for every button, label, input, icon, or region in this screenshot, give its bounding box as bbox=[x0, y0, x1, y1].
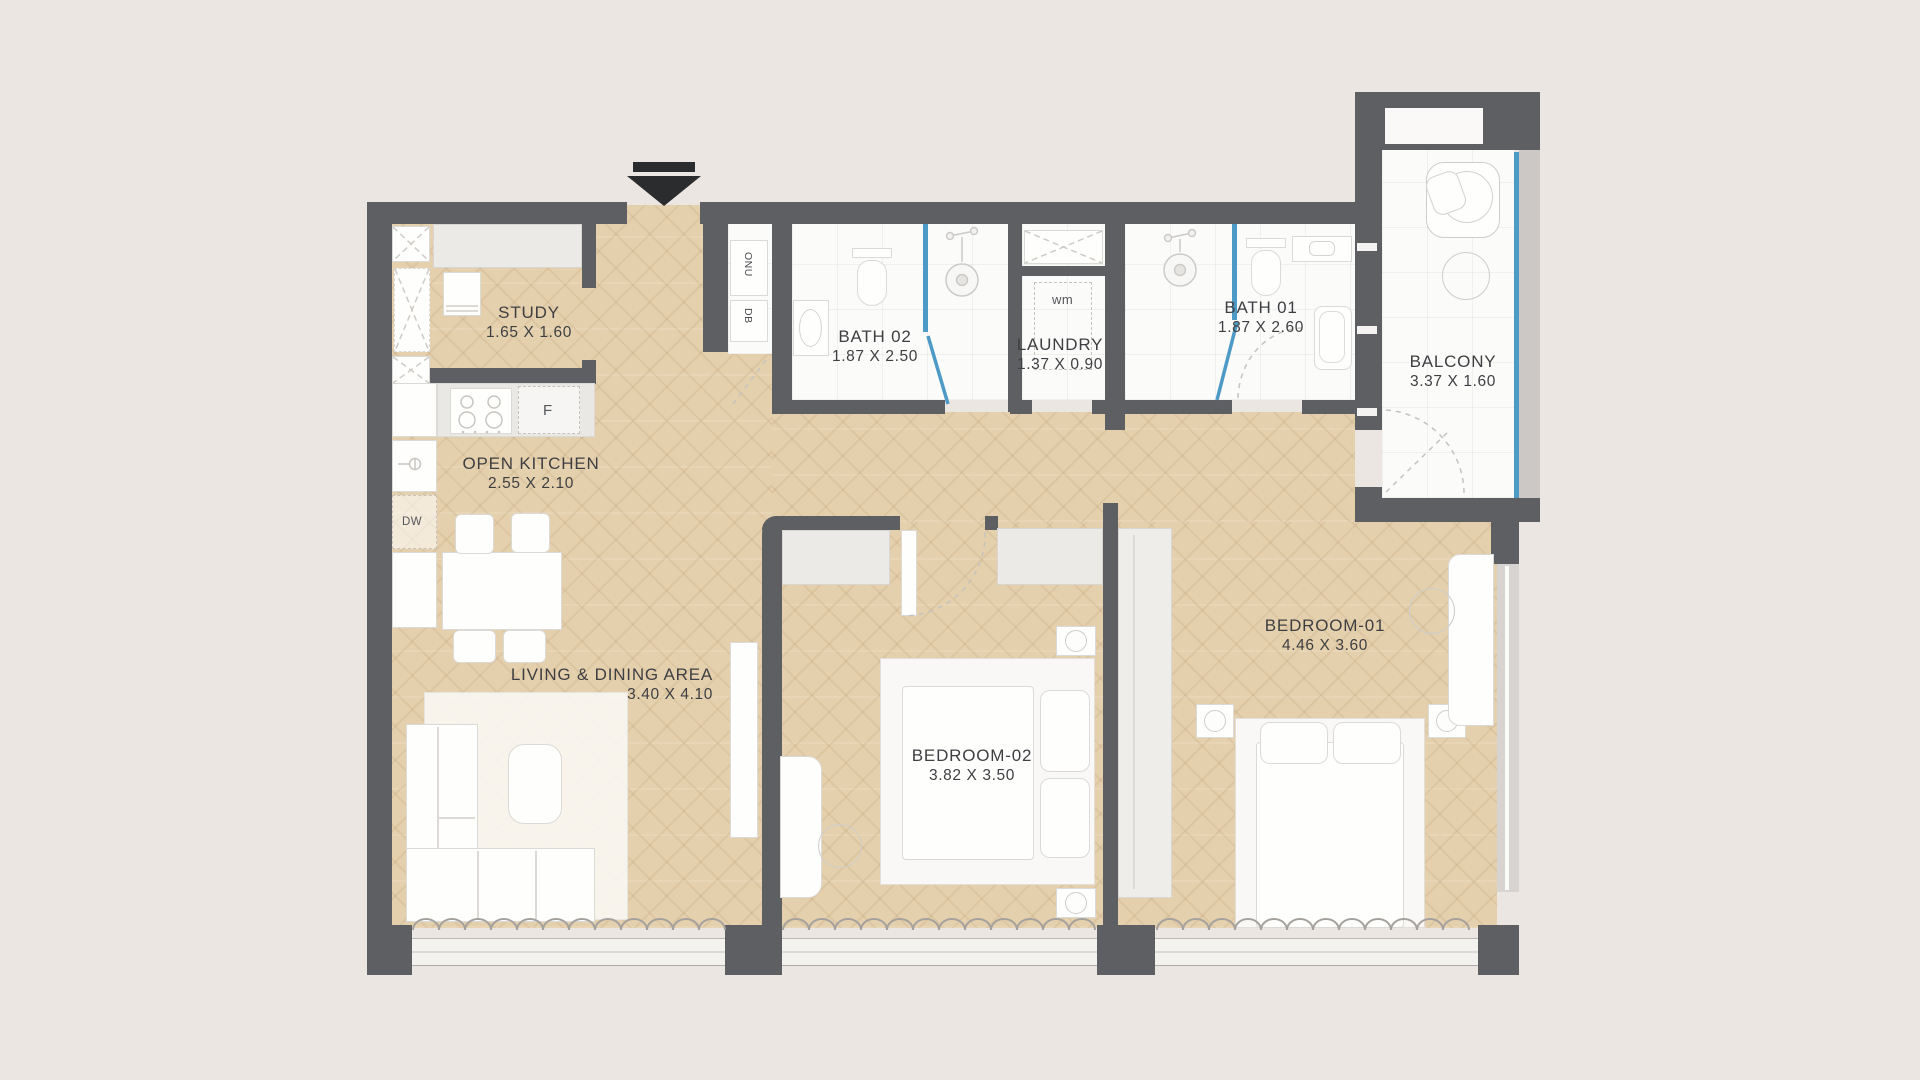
room-name: STUDY bbox=[486, 304, 572, 321]
room-dims: 4.46 X 3.60 bbox=[1265, 638, 1385, 654]
label-laundry: LAUNDRY 1.37 X 0.90 bbox=[1017, 336, 1104, 373]
kitchen-faucet bbox=[398, 458, 421, 470]
label-kitchen: OPEN KITCHEN 2.55 X 2.10 bbox=[462, 455, 599, 492]
room-dims: 3.82 X 3.50 bbox=[912, 768, 1032, 784]
room-dims: 1.37 X 0.90 bbox=[1017, 357, 1104, 373]
label-bath01: BATH 01 1.87 X 2.60 bbox=[1218, 299, 1304, 336]
room-name: LAUNDRY bbox=[1017, 336, 1104, 353]
label-study: STUDY 1.65 X 1.60 bbox=[486, 304, 572, 341]
room-dims: 3.37 X 1.60 bbox=[1410, 374, 1497, 390]
room-dims: 3.40 X 4.10 bbox=[463, 687, 713, 703]
room-name: BEDROOM-01 bbox=[1265, 617, 1385, 634]
plan-linework bbox=[0, 0, 1920, 1080]
room-name: BALCONY bbox=[1410, 353, 1497, 370]
room-name: LIVING & DINING AREA bbox=[463, 666, 713, 683]
label-balcony: BALCONY 3.37 X 1.60 bbox=[1410, 353, 1497, 390]
shower-head-bath01 bbox=[1164, 230, 1196, 287]
shower-head-bath02 bbox=[946, 228, 978, 297]
room-dims: 1.87 X 2.60 bbox=[1218, 320, 1304, 336]
label-living: LIVING & DINING AREA 3.40 X 4.10 bbox=[463, 666, 713, 703]
room-name: BATH 02 bbox=[832, 328, 918, 345]
room-dims: 1.87 X 2.50 bbox=[832, 349, 918, 365]
room-name: BEDROOM-02 bbox=[912, 747, 1032, 764]
room-dims: 2.55 X 2.10 bbox=[462, 476, 599, 492]
room-dims: 1.65 X 1.60 bbox=[486, 325, 572, 341]
label-bedroom02: BEDROOM-02 3.82 X 3.50 bbox=[912, 747, 1032, 784]
floor-plan: F DW ONU DB wm bbox=[0, 0, 1920, 1080]
label-bath02: BATH 02 1.87 X 2.50 bbox=[832, 328, 918, 365]
room-name: OPEN KITCHEN bbox=[462, 455, 599, 472]
label-bedroom01: BEDROOM-01 4.46 X 3.60 bbox=[1265, 617, 1385, 654]
curtains bbox=[413, 919, 1469, 930]
room-name: BATH 01 bbox=[1218, 299, 1304, 316]
